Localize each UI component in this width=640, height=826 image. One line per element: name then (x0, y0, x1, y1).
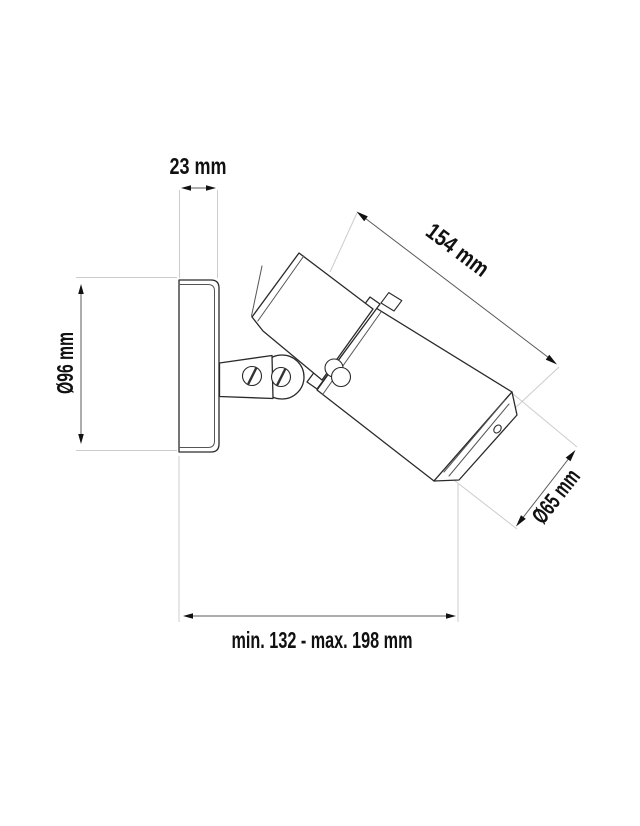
ext-line-body-length-left (330, 213, 357, 272)
arrowhead-downleft-icon (516, 515, 526, 526)
mounting-bracket (220, 355, 305, 399)
adjustment-knob (332, 368, 351, 387)
ext-line-head-diameter-bottom (450, 477, 517, 529)
mounting-tab (381, 293, 402, 311)
dimension-label-body-length: 154 mm (421, 218, 494, 282)
wall-plate (179, 280, 219, 452)
arrowhead-upright-icon (566, 450, 576, 461)
dimension-plate-diameter: Ø96 mm (52, 284, 84, 444)
dimension-projection: min. 132 - max. 198 mm (183, 613, 456, 653)
arrowhead-right-icon (206, 185, 216, 191)
dimension-head-diameter: Ø65 mm (516, 450, 585, 529)
ext-line-body-length-right (513, 367, 559, 410)
arrowhead-upleft-icon (357, 212, 368, 222)
arrowhead-left-icon (181, 185, 191, 191)
arrowhead-down-icon (78, 434, 84, 444)
dimension-plate-depth: 23 mm (170, 153, 227, 191)
ext-line-head-diameter-top (512, 393, 577, 447)
dimension-label-projection: min. 132 - max. 198 mm (232, 627, 413, 653)
dimension-label-plate-depth: 23 mm (170, 153, 227, 179)
dimension-label-plate-diameter: Ø96 mm (52, 332, 78, 394)
drawing-canvas: 23 mm Ø96 mm 154 mm Ø65 mm min. 132 - ma… (0, 0, 640, 826)
dimension-label-head-diameter: Ø65 mm (526, 464, 585, 529)
arrowhead-left-icon (183, 613, 193, 619)
arrowhead-right-icon (446, 613, 456, 619)
wall-plate-body (179, 280, 219, 452)
arrowhead-up-icon (78, 284, 84, 294)
technical-drawing: 23 mm Ø96 mm 154 mm Ø65 mm min. 132 - ma… (0, 0, 640, 826)
